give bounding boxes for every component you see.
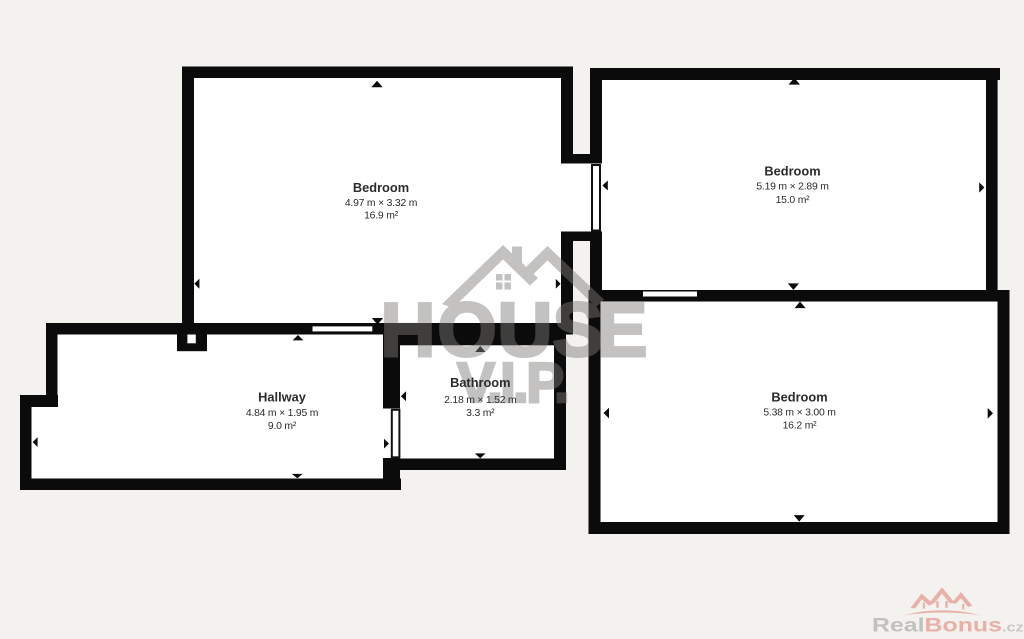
svg-text:Bedroom: Bedroom xyxy=(353,180,409,195)
svg-text:Bedroom: Bedroom xyxy=(764,164,820,179)
svg-text:3.3 m²: 3.3 m² xyxy=(466,408,495,419)
svg-text:Bedroom: Bedroom xyxy=(771,390,827,405)
svg-text:2.18 m × 1.52 m: 2.18 m × 1.52 m xyxy=(444,395,516,406)
svg-text:5.19 m × 2.89 m: 5.19 m × 2.89 m xyxy=(756,182,828,193)
svg-text:9.0 m²: 9.0 m² xyxy=(268,421,297,432)
svg-text:RealBonus.cz: RealBonus.cz xyxy=(872,614,1024,635)
svg-text:Bathroom: Bathroom xyxy=(450,375,510,390)
svg-text:H: H xyxy=(381,288,436,373)
svg-text:15.0 m²: 15.0 m² xyxy=(776,195,811,206)
svg-text:E: E xyxy=(597,288,648,373)
svg-text:16.9 m²: 16.9 m² xyxy=(364,210,399,221)
svg-text:4.97 m × 3.32 m: 4.97 m × 3.32 m xyxy=(345,198,417,209)
svg-text:5.38 m × 3.00 m: 5.38 m × 3.00 m xyxy=(763,408,835,419)
svg-text:16.2 m²: 16.2 m² xyxy=(783,421,818,432)
svg-text:Hallway: Hallway xyxy=(258,390,307,405)
svg-text:4.84 m × 1.95 m: 4.84 m × 1.95 m xyxy=(246,408,318,419)
